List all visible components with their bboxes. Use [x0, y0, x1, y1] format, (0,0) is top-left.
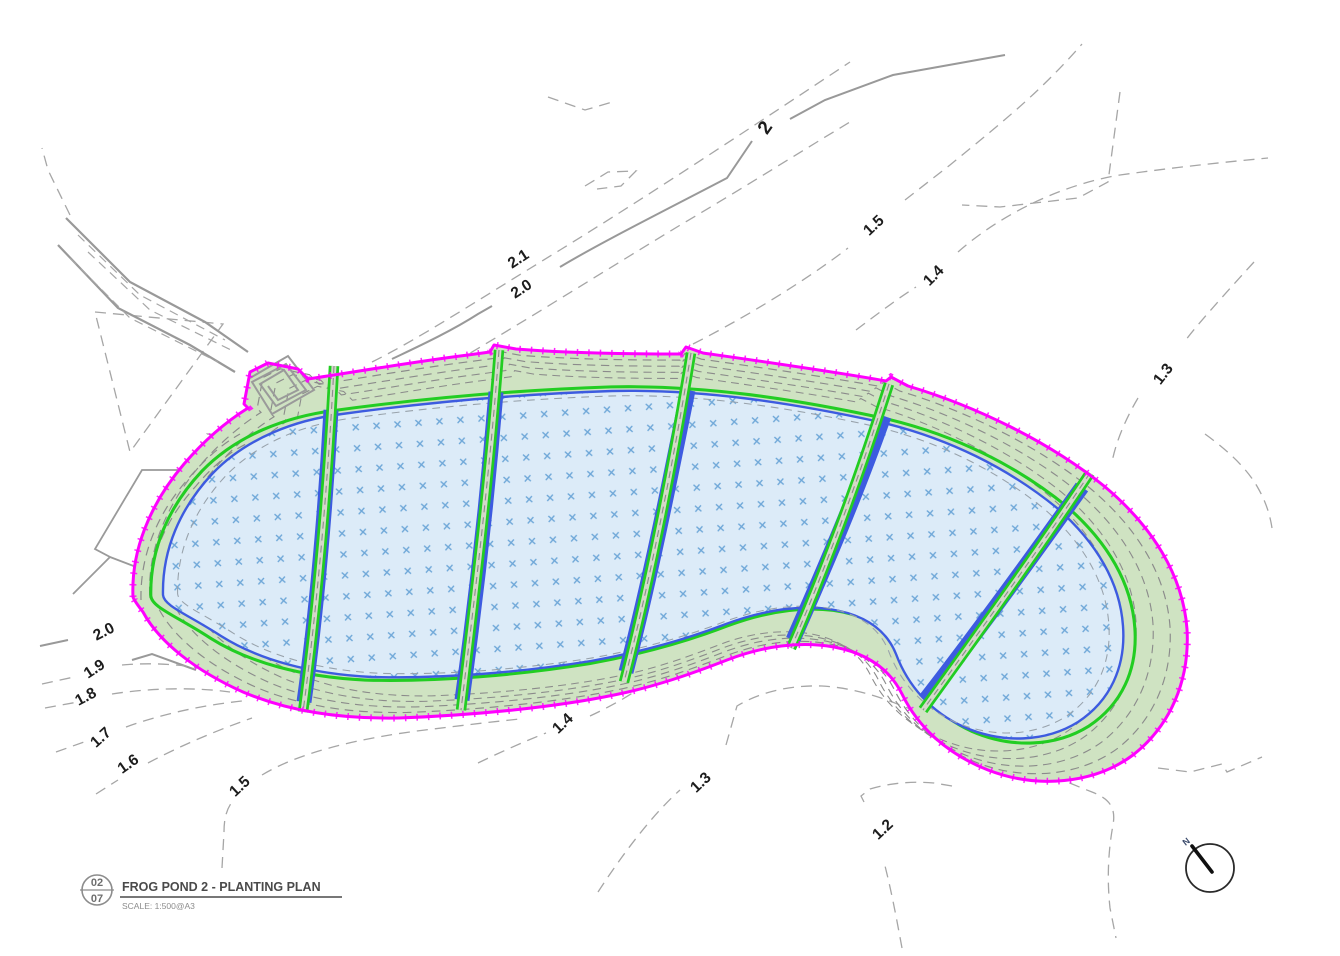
contour-label: 2.1: [505, 246, 533, 272]
contour-aux-top: [455, 122, 850, 362]
contour-label: 1.2: [869, 816, 896, 843]
contour-label: 1.4: [549, 710, 577, 737]
contour-1_5-bottomleft: [222, 719, 520, 868]
contour-label: 1.5: [860, 212, 888, 239]
drawing-title: FROG POND 2 - PLANTING PLAN: [122, 880, 321, 894]
contour-fragment-oval: [585, 171, 636, 189]
index-contour-2: [392, 55, 1005, 359]
channel-edge-upper: [66, 218, 248, 352]
contour-2_1: [372, 62, 850, 362]
channel-edge-lower: [58, 245, 235, 372]
contour-label: 1.5: [226, 773, 254, 800]
contour-label: 1.9: [81, 656, 109, 682]
contour-1_7: [56, 701, 242, 752]
title-block: 02 07 FROG POND 2 - PLANTING PLAN SCALE:…: [80, 875, 342, 911]
contour-1_3-topright-b: [1112, 262, 1254, 462]
site-plan-canvas: 22.12.01.51.41.32.01.91.81.71.61.51.41.3…: [0, 0, 1340, 956]
contour-1_3-topright-a: [962, 92, 1120, 207]
contour-label: 1.3: [1150, 360, 1177, 388]
north-label: N: [1181, 836, 1192, 848]
contour-label: 2.0: [90, 620, 117, 645]
contour-fragment-corner: [42, 148, 70, 215]
contour-right-edge: [1205, 434, 1272, 528]
contour-1_4-top: [856, 158, 1268, 330]
detail-number: 02: [91, 877, 103, 889]
contour-1_5-top: [693, 44, 1082, 344]
contour-1_6: [96, 718, 252, 794]
scale-note: SCALE: 1:500@A3: [122, 901, 195, 911]
contour-label: 1.3: [687, 769, 715, 796]
contour-label: 1.6: [115, 751, 143, 778]
north-arrow: N: [1181, 836, 1234, 892]
contour-notch-right: [1158, 757, 1262, 772]
channel-dash-3: [70, 258, 218, 362]
contour-label: 1.4: [920, 262, 948, 290]
contour-1_2: [861, 782, 952, 948]
sheet-number: 07: [91, 893, 103, 905]
contour-label: 2: [754, 117, 777, 138]
contour-label: 1.8: [72, 684, 99, 709]
slope-triangle-upper: [95, 312, 223, 452]
contour-label: 1.7: [87, 724, 114, 751]
contour-fragment-top: [548, 97, 616, 110]
contour-1_8: [45, 689, 230, 708]
